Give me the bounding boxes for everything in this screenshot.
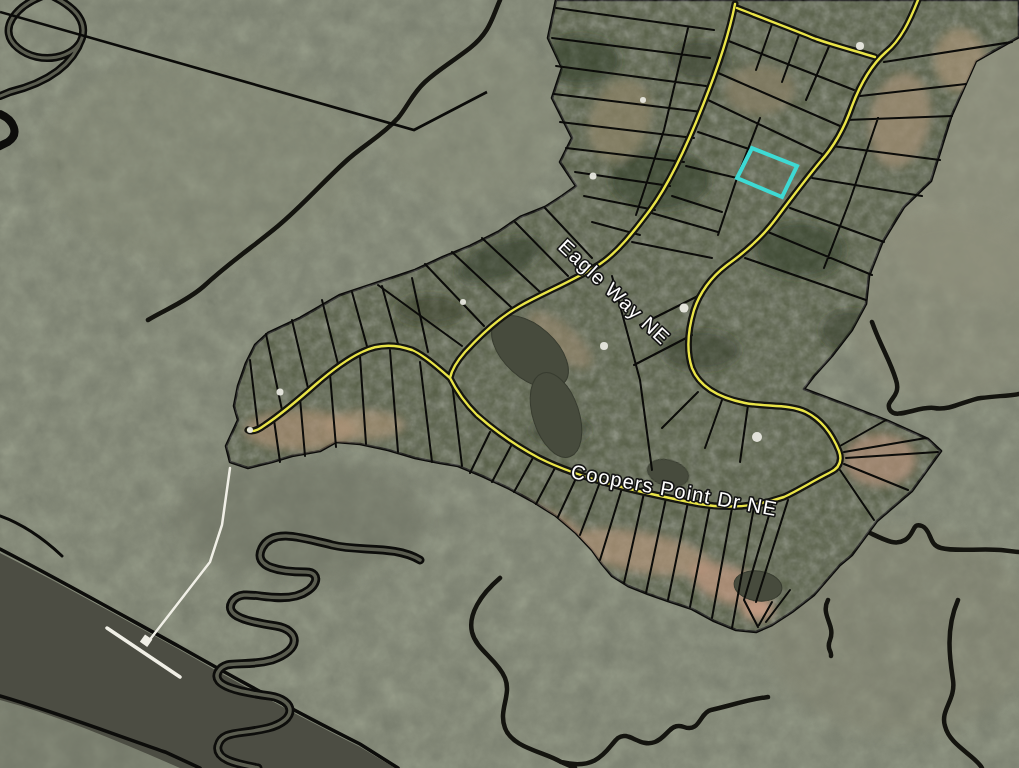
map-viewport[interactable]: Eagle Way NE Coopers Point Dr NE: [0, 0, 1019, 768]
marsh-light-patch: [375, 35, 565, 205]
marsh-light-patch: [40, 55, 360, 265]
house: [680, 304, 689, 313]
marsh-dark-patch: [175, 460, 425, 580]
house: [752, 432, 762, 442]
house: [460, 299, 466, 305]
house: [640, 97, 646, 103]
house: [856, 42, 864, 50]
house: [277, 389, 284, 396]
road-end-marker: [247, 427, 253, 433]
aerial-map: Eagle Way NE Coopers Point Dr NE: [0, 0, 1019, 768]
house: [590, 173, 597, 180]
house: [600, 342, 608, 350]
